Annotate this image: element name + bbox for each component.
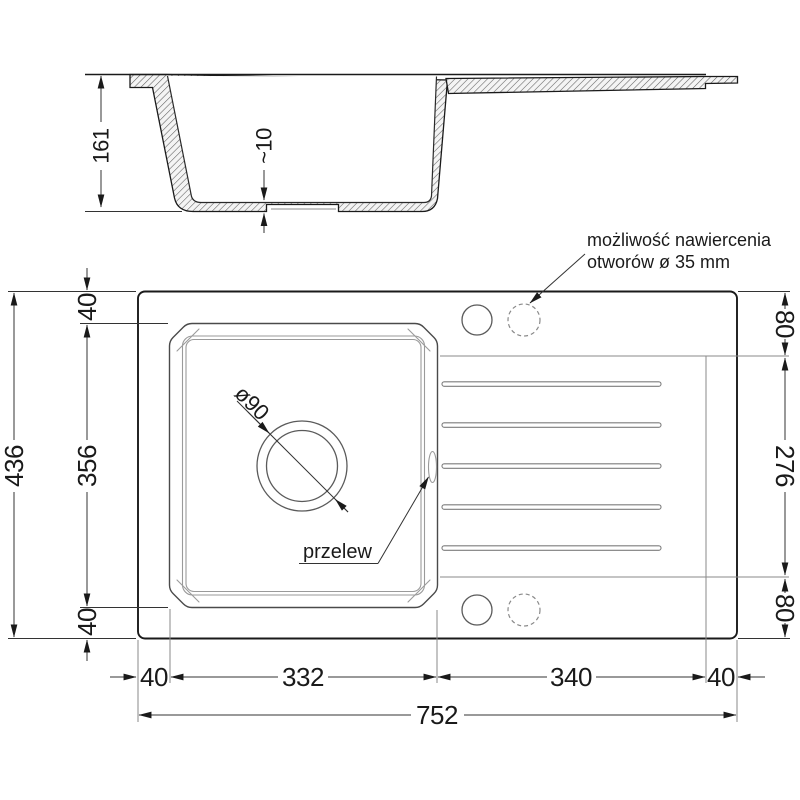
dim-label-total-width: 752	[416, 700, 458, 730]
dim-label-161: 161	[89, 128, 114, 163]
dim-label-right-top: 80	[770, 310, 800, 338]
tap-hole-bottom	[462, 595, 492, 625]
section-bowl-interior	[168, 76, 437, 203]
tap-hole-top	[462, 305, 492, 335]
dim-label-left-margin: 40	[140, 662, 168, 692]
overflow-label: przelew	[303, 541, 372, 563]
dim-label-recess: ~10	[252, 128, 277, 164]
dim-label-bowl-width: 332	[282, 662, 324, 692]
dim-label-drainer-width: 340	[550, 662, 592, 692]
dim-label-bottom-margin: 40	[72, 608, 102, 636]
drill-note-line2: otworów ø 35 mm	[587, 252, 730, 272]
top-view: ø90 przelew możliwość nawiercenia otworó…	[138, 230, 789, 683]
dim-label-total-height: 436	[0, 445, 29, 487]
dim-label-right-bottom: 80	[770, 594, 800, 622]
sink-technical-drawing: 161 ~10	[0, 0, 800, 800]
drill-note-line1: możliwość nawiercenia	[587, 230, 772, 250]
dim-label-top-margin: 40	[72, 293, 102, 321]
dim-label-bowl-length: 356	[72, 445, 102, 487]
dim-label-drainer-length: 276	[770, 445, 800, 487]
dim-label-right-margin: 40	[707, 662, 735, 692]
